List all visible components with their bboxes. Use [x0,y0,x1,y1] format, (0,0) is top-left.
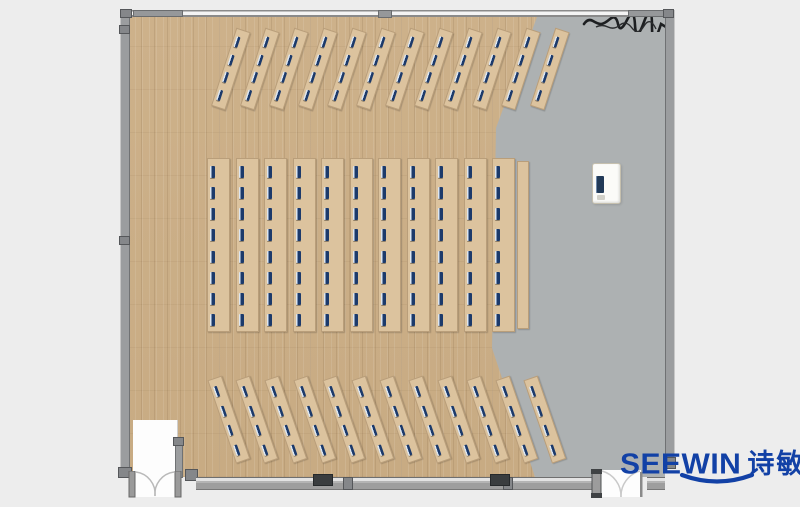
wall-bottom [196,477,592,490]
monitor-icon [324,187,329,199]
monitor-icon [495,314,500,326]
monitor-icon [377,444,384,456]
monitor-icon [381,166,386,178]
monitor-icon [353,208,358,220]
monitor-icon [492,444,499,456]
monitor-icon [517,54,524,66]
monitor-icon [303,89,310,101]
monitor-icon [438,187,443,199]
monitor-icon [324,208,329,220]
monitor-icon [314,54,321,66]
wall-column [490,474,510,486]
middle-columns-desk [321,158,344,332]
monitor-icon [227,54,234,66]
monitor-icon [523,36,530,48]
monitor-icon [210,187,215,199]
monitor-icon [348,444,355,456]
podium-slot-icon [597,195,605,200]
monitor-icon [438,314,443,326]
monitor-icon [381,293,386,305]
monitor-icon [296,166,301,178]
monitor-icon [210,314,215,326]
monitor-icon [488,54,495,66]
monitor-icon [494,36,501,48]
monitor-icon [341,425,348,437]
wall-segment [628,10,666,17]
monitor-icon [478,405,485,417]
monitor-icon [434,444,441,456]
monitor-icon [241,386,248,398]
monitor-icon [410,166,415,178]
monitor-icon [500,386,507,398]
monitor-icon [267,272,272,284]
monitor-icon [239,251,244,263]
monitor-icon [438,293,443,305]
middle-columns-desk [293,158,316,332]
monitor-icon [290,444,297,456]
monitor-icon [324,251,329,263]
wall-joint [119,25,130,34]
monitor-icon [212,386,219,398]
monitor-icon [239,272,244,284]
monitor-icon [495,166,500,178]
monitor-icon [308,72,315,84]
monitor-icon [320,36,327,48]
monitor-icon [353,166,358,178]
monitor-icon [267,208,272,220]
monitor-icon [482,72,489,84]
monitor-icon [535,89,542,101]
monitor-icon [219,405,226,417]
monitor-icon [395,72,402,84]
monitor-icon [419,89,426,101]
wall-top [128,10,665,17]
monitor-icon [472,386,479,398]
monitor-icon [495,208,500,220]
monitor-icon [495,229,500,241]
monitor-icon [424,72,431,84]
monitor-icon [495,293,500,305]
monitor-icon [385,386,392,398]
monitor-icon [324,272,329,284]
monitor-icon [529,386,536,398]
monitor-icon [239,229,244,241]
monitor-icon [381,208,386,220]
monitor-icon [514,425,521,437]
monitor-icon [226,425,233,437]
monitor-icon [381,314,386,326]
monitor-icon [536,405,543,417]
monitor-icon [267,166,272,178]
wall-segment [133,10,183,17]
monitor-icon [467,229,472,241]
monitor-icon [270,386,277,398]
monitor-icon [353,229,358,241]
monitor-icon [546,54,553,66]
monitor-icon [410,187,415,199]
monitor-icon [410,314,415,326]
monitor-icon [506,89,513,101]
monitor-icon [456,425,463,437]
monitor-icon [296,251,301,263]
monitor-icon [296,272,301,284]
monitor-icon [381,251,386,263]
monitor-icon [210,229,215,241]
monitor-icon [296,229,301,241]
monitor-icon [233,444,240,456]
monitor-icon [324,293,329,305]
monitor-icon [250,72,257,84]
wall-corner-top-left [120,9,132,18]
monitor-icon [381,187,386,199]
monitor-icon [334,405,341,417]
middle-columns-desk [378,158,401,332]
middle-columns-desk [464,158,487,332]
monitor-icon [540,72,547,84]
monitor-icon [221,72,228,84]
monitor-icon [363,405,370,417]
monitor-icon [467,208,472,220]
middle-columns-desk [492,158,515,332]
monitor-icon [443,386,450,398]
monitor-icon [390,89,397,101]
monitor-icon [343,54,350,66]
monitor-icon [511,72,518,84]
monitor-icon [239,166,244,178]
monitor-icon [267,293,272,305]
monitor-icon [438,229,443,241]
monitor-icon [245,89,252,101]
wall-joint [173,437,184,446]
monitor-icon [296,187,301,199]
monitor-icon [262,36,269,48]
monitor-icon [285,54,292,66]
monitor-icon [361,89,368,101]
monitor-icon [381,229,386,241]
monitor-icon [296,208,301,220]
monitor-icon [283,425,290,437]
monitor-icon [296,314,301,326]
monitor-icon [291,36,298,48]
monitor-icon [299,386,306,398]
monitor-icon [410,272,415,284]
monitor-icon [239,293,244,305]
monitor-icon [356,386,363,398]
monitor-icon [438,272,443,284]
monitor-icon [378,36,385,48]
room [128,17,665,477]
monitor-icon [210,272,215,284]
monitor-icon [465,36,472,48]
monitor-icon [438,166,443,178]
monitor-icon [328,386,335,398]
monitor-icon [305,405,312,417]
monitor-icon [256,54,263,66]
monitor-icon [495,272,500,284]
wall-joint [378,10,392,18]
monitor-icon [353,251,358,263]
floor-plan: SEEWIN诗敏 [0,0,800,507]
monitor-icon [324,229,329,241]
monitor-icon [210,251,215,263]
monitor-icon [296,293,301,305]
monitor-icon [399,425,406,437]
monitor-icon [401,54,408,66]
monitor-icon [210,208,215,220]
monitor-icon [507,405,514,417]
monitor-icon [239,208,244,220]
monitor-icon [353,293,358,305]
monitor-icon [463,444,470,456]
middle-columns-desk [435,158,458,332]
middle-columns-desk [264,158,287,332]
wall-column [313,474,333,486]
wall-right [665,10,675,468]
monitor-icon [233,36,240,48]
brand-logo: SEEWIN诗敏 [620,442,800,490]
monitor-icon [438,251,443,263]
monitor-icon [349,36,356,48]
podium [592,163,621,204]
monitor-icon [370,425,377,437]
monitor-icon [430,54,437,66]
monitor-icon [552,36,559,48]
monitor-icon [324,166,329,178]
monitor-icon [267,187,272,199]
monitor-icon [274,89,281,101]
wall-corner-top-right [663,9,674,18]
monitor-icon [467,251,472,263]
monitor-icon [337,72,344,84]
monitor-icon [543,425,550,437]
monitor-icon [353,272,358,284]
monitor-icon [467,166,472,178]
monitor-icon [210,166,215,178]
monitor-icon [410,229,415,241]
monitor-icon [467,314,472,326]
middle-columns-desk [207,158,230,332]
monitor-icon [521,444,528,456]
wall-joint [343,477,353,490]
monitor-icon [312,425,319,437]
monitor-icon [448,89,455,101]
monitor-icon [381,272,386,284]
monitor-icon [410,293,415,305]
double-door-left-icon [127,471,183,499]
monitor-icon [459,54,466,66]
monitor-icon [392,405,399,417]
monitor-icon [267,229,272,241]
middle-columns-desk [407,158,430,332]
monitor-icon [495,187,500,199]
monitor-icon [332,89,339,101]
monitor-icon [410,208,415,220]
monitor-icon [366,72,373,84]
monitor-icon [277,405,284,417]
monitor-icon [467,187,472,199]
brand-swoosh-icon [678,472,756,486]
monitor-icon [248,405,255,417]
monitor-icon [407,36,414,48]
monitor-icon [210,293,215,305]
monitor-icon [353,187,358,199]
middle-columns-desk [236,158,259,332]
monitor-icon [410,251,415,263]
monitor-icon [549,444,556,456]
monitor-icon [279,72,286,84]
monitor-icon [353,314,358,326]
monitor-icon [216,89,223,101]
middle-columns-desk [350,158,373,332]
monitor-icon [261,444,268,456]
monitor-icon [319,444,326,456]
monitor-icon [405,444,412,456]
monitor-icon [467,293,472,305]
podium-screen-icon [596,176,604,193]
entry-alcove [133,420,178,477]
monitor-icon [267,314,272,326]
monitor-icon [427,425,434,437]
monitor-icon [414,386,421,398]
monitor-icon [239,314,244,326]
monitor-icon [438,208,443,220]
monitor-icon [255,425,262,437]
monitor-icon [239,187,244,199]
monitor-icon [324,314,329,326]
monitor-icon [485,425,492,437]
monitor-icon [267,251,272,263]
monitor-icon [421,405,428,417]
monitor-icon [467,272,472,284]
monitor-icon [453,72,460,84]
monitor-icon [436,36,443,48]
wall-joint [119,236,130,245]
monitor-icon [449,405,456,417]
monitor-icon [495,251,500,263]
monitor-icon [372,54,379,66]
monitor-icon [477,89,484,101]
side-table [517,161,529,329]
